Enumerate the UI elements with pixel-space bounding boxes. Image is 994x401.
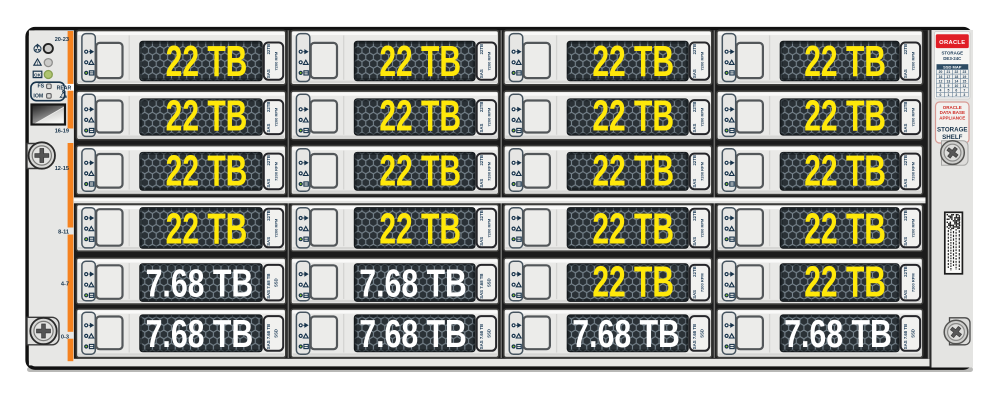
svg-text:7.68 TB: 7.68 TB [784,314,892,356]
svg-text:14: 14 [954,79,958,83]
svg-text:22TB: 22TB [266,155,271,166]
svg-text:22TB: 22TB [479,44,484,55]
svg-text:FS: FS [38,84,45,90]
svg-text:7200 RPM: 7200 RPM [911,273,916,293]
svg-text:SAS: SAS [692,179,697,188]
svg-text:22TB: 22TB [903,102,908,113]
svg-text:SAS: SAS [903,290,908,299]
svg-text:22TB: 22TB [692,155,697,166]
svg-text:SAS: SAS [692,237,697,246]
svg-text:SSD: SSD [911,329,916,338]
svg-text:8-11: 8-11 [58,230,69,236]
svg-text:22 TB: 22 TB [166,91,248,140]
svg-text:7200 RPM: 7200 RPM [911,107,916,127]
svg-text:SAS: SAS [903,179,908,188]
svg-text:SHELF: SHELF [942,134,963,141]
svg-text:7200 RPM: 7200 RPM [700,161,705,181]
svg-text:SAS 7.68 TB: SAS 7.68 TB [692,324,697,349]
svg-text:SAS: SAS [692,69,697,78]
svg-text:22 TB: 22 TB [379,91,461,140]
svg-text:18: 18 [954,75,958,79]
svg-text:22 TB: 22 TB [804,204,886,253]
svg-text:DE3-24C: DE3-24C [943,56,962,61]
svg-text:SAS: SAS [692,124,697,133]
svg-text:SAS: SAS [479,237,484,246]
svg-text:4: 4 [940,88,942,92]
svg-text:22TB: 22TB [266,210,271,221]
svg-text:SAS: SAS [266,124,271,133]
svg-text:8: 8 [940,84,942,88]
svg-text:7200 RPM: 7200 RPM [487,107,492,127]
svg-text:SAS 7.68 TB: SAS 7.68 TB [903,324,908,349]
svg-text:22 TB: 22 TB [166,146,248,195]
svg-text:13: 13 [947,79,951,83]
svg-text:7: 7 [963,88,965,92]
svg-text:22 TB: 22 TB [592,146,674,195]
svg-text:7200 RPM: 7200 RPM [487,51,492,71]
svg-text:1: 1 [947,93,949,97]
svg-text:SSD: SSD [274,278,279,287]
svg-text:SAS: SAS [903,237,908,246]
svg-text:22TB: 22TB [903,210,908,221]
svg-text:20: 20 [939,70,943,74]
svg-text:0-3: 0-3 [61,334,69,340]
svg-text:2: 2 [955,93,957,97]
svg-text:SAS 7.68 TB: SAS 7.68 TB [479,324,484,349]
svg-text:3: 3 [963,93,965,97]
svg-text:SAS 7.68 TB: SAS 7.68 TB [266,324,271,349]
svg-text:7200 RPM: 7200 RPM [911,161,916,181]
svg-text:16: 16 [939,75,943,79]
svg-text:7200 RPM: 7200 RPM [700,218,705,238]
svg-text:SAS: SAS [266,69,271,78]
svg-text:9: 9 [947,84,949,88]
svg-text:7200 RPM: 7200 RPM [487,218,492,238]
svg-text:5: 5 [947,88,949,92]
svg-text:ORACLE: ORACLE [939,40,965,46]
svg-text:SAS: SAS [479,69,484,78]
svg-text:0: 0 [940,93,942,97]
svg-text:22 TB: 22 TB [804,146,886,195]
svg-text:22TB: 22TB [903,155,908,166]
svg-text:22 TB: 22 TB [592,257,674,306]
svg-text:STORAGE: STORAGE [937,127,967,134]
svg-text:7200 RPM: 7200 RPM [911,218,916,238]
svg-text:22TB: 22TB [479,102,484,113]
svg-text:7200 RPM: 7200 RPM [911,51,916,71]
svg-text:16-19: 16-19 [55,129,69,135]
svg-text:APPLIANCE: APPLIANCE [939,116,965,121]
svg-text:22TB: 22TB [479,210,484,221]
svg-text:!: ! [37,61,38,66]
svg-text:22TB: 22TB [266,102,271,113]
svg-text:22 TB: 22 TB [592,204,674,253]
svg-text:SAS: SAS [266,237,271,246]
svg-text:22TB: 22TB [692,210,697,221]
svg-text:7200 RPM: 7200 RPM [700,107,705,127]
svg-text:22 TB: 22 TB [804,91,886,140]
svg-text:20-23: 20-23 [55,37,69,43]
svg-text:SSD: SSD [274,329,279,338]
svg-text:21: 21 [947,70,951,74]
svg-text:SAS: SAS [266,179,271,188]
svg-text:22 TB: 22 TB [379,204,461,253]
svg-text:7.68 TB: 7.68 TB [146,314,254,356]
svg-text:DATA BASE: DATA BASE [940,110,965,115]
svg-text:10: 10 [954,84,958,88]
svg-text:22TB: 22TB [692,102,697,113]
svg-text:7200 RPM: 7200 RPM [700,273,705,293]
svg-text:7200 RPM: 7200 RPM [487,161,492,181]
svg-text:SSD: SSD [487,329,492,338]
svg-text:22TB: 22TB [692,44,697,55]
svg-text:22TB: 22TB [479,155,484,166]
svg-text:22 TB: 22 TB [379,146,461,195]
svg-text:OK: OK [34,73,42,78]
svg-text:4-7: 4-7 [61,281,69,287]
svg-text:7.68 TB: 7.68 TB [359,263,467,305]
svg-text:22 TB: 22 TB [804,257,886,306]
svg-text:7200 RPM: 7200 RPM [274,161,279,181]
svg-text:7.68 TB: 7.68 TB [359,314,467,356]
svg-text:SAS: SAS [903,69,908,78]
svg-text:7.68 TB: 7.68 TB [146,263,254,305]
svg-text:12-15: 12-15 [55,166,69,172]
svg-text:7200 RPM: 7200 RPM [274,51,279,71]
svg-text:22 TB: 22 TB [592,36,674,85]
svg-text:IOM: IOM [33,93,43,99]
svg-text:SAS 7.68 TB: SAS 7.68 TB [266,273,271,298]
svg-text:23: 23 [962,70,966,74]
svg-text:7200 RPM: 7200 RPM [274,107,279,127]
svg-text:7200 RPM: 7200 RPM [700,51,705,71]
svg-text:SAS: SAS [479,124,484,133]
svg-text:22 TB: 22 TB [592,91,674,140]
svg-text:6: 6 [955,88,957,92]
svg-text:22: 22 [954,70,958,74]
svg-text:22TB: 22TB [903,266,908,277]
svg-text:22 TB: 22 TB [166,36,248,85]
svg-text:SAS: SAS [479,179,484,188]
svg-text:22TB: 22TB [903,44,908,55]
svg-text:11: 11 [963,84,967,88]
svg-text:ORACLE: ORACLE [943,105,962,110]
svg-text:22 TB: 22 TB [379,36,461,85]
svg-text:SAS: SAS [903,124,908,133]
svg-text:12: 12 [939,79,943,83]
svg-text:SSD MAP: SSD MAP [943,64,962,69]
svg-text:17: 17 [947,75,951,79]
svg-text:19: 19 [962,75,966,79]
svg-text:15: 15 [962,79,966,83]
svg-text:22 TB: 22 TB [166,204,248,253]
svg-text:22TB: 22TB [266,44,271,55]
svg-text:7.68 TB: 7.68 TB [572,314,680,356]
svg-text:SAS 7.68 TB: SAS 7.68 TB [479,273,484,298]
svg-text:22 TB: 22 TB [804,36,886,85]
svg-text:SSD: SSD [487,278,492,287]
svg-text:7200 RPM: 7200 RPM [274,218,279,238]
svg-text:SSD: SSD [700,329,705,338]
svg-text:SAS: SAS [692,290,697,299]
svg-text:22TB: 22TB [692,266,697,277]
